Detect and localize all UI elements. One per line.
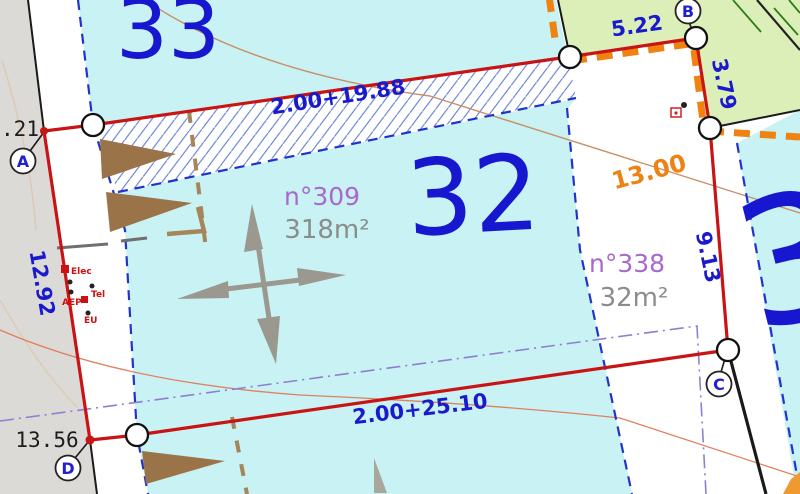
corner-point-a <box>40 127 48 135</box>
lot-309-number: n°309 <box>284 182 360 211</box>
utility-point-icon <box>90 284 95 289</box>
parcel-number-33: 33 <box>116 0 220 78</box>
utility-elec-label: Elec <box>71 267 92 277</box>
aep-marker-icon <box>81 296 88 303</box>
utility-point-icon <box>69 290 74 295</box>
vertex-label-d: D <box>61 459 74 478</box>
corner-point-d <box>86 436 95 445</box>
vertex-label-c: C <box>713 375 725 394</box>
utility-aep-label: AEP <box>62 298 82 308</box>
utility-point-icon <box>68 280 73 285</box>
measurement-offset-21: .21 <box>1 117 39 141</box>
cadastral-map: A B C D Elec Tel AEP EU 33 32 3 n°309 31… <box>0 0 800 494</box>
lot-338-area: 32m² <box>600 283 669 313</box>
survey-mark-dot <box>674 111 677 114</box>
map-canvas: A B C D Elec Tel AEP EU 33 32 3 n°309 31… <box>0 0 800 494</box>
utility-tel-label: Tel <box>91 290 105 300</box>
lot-309-area: 318m² <box>284 215 369 245</box>
vertex-label-a: A <box>17 152 30 171</box>
vertex-label-b: B <box>682 2 694 21</box>
utility-point-icon <box>86 311 91 316</box>
survey-point-dot <box>681 102 687 108</box>
elec-marker-icon <box>61 265 69 273</box>
lot-338-number: n°338 <box>589 249 665 278</box>
parcel-number-32: 32 <box>403 132 543 261</box>
utility-eu-label: EU <box>84 316 97 326</box>
measurement-13-56: 13.56 <box>15 428 78 452</box>
